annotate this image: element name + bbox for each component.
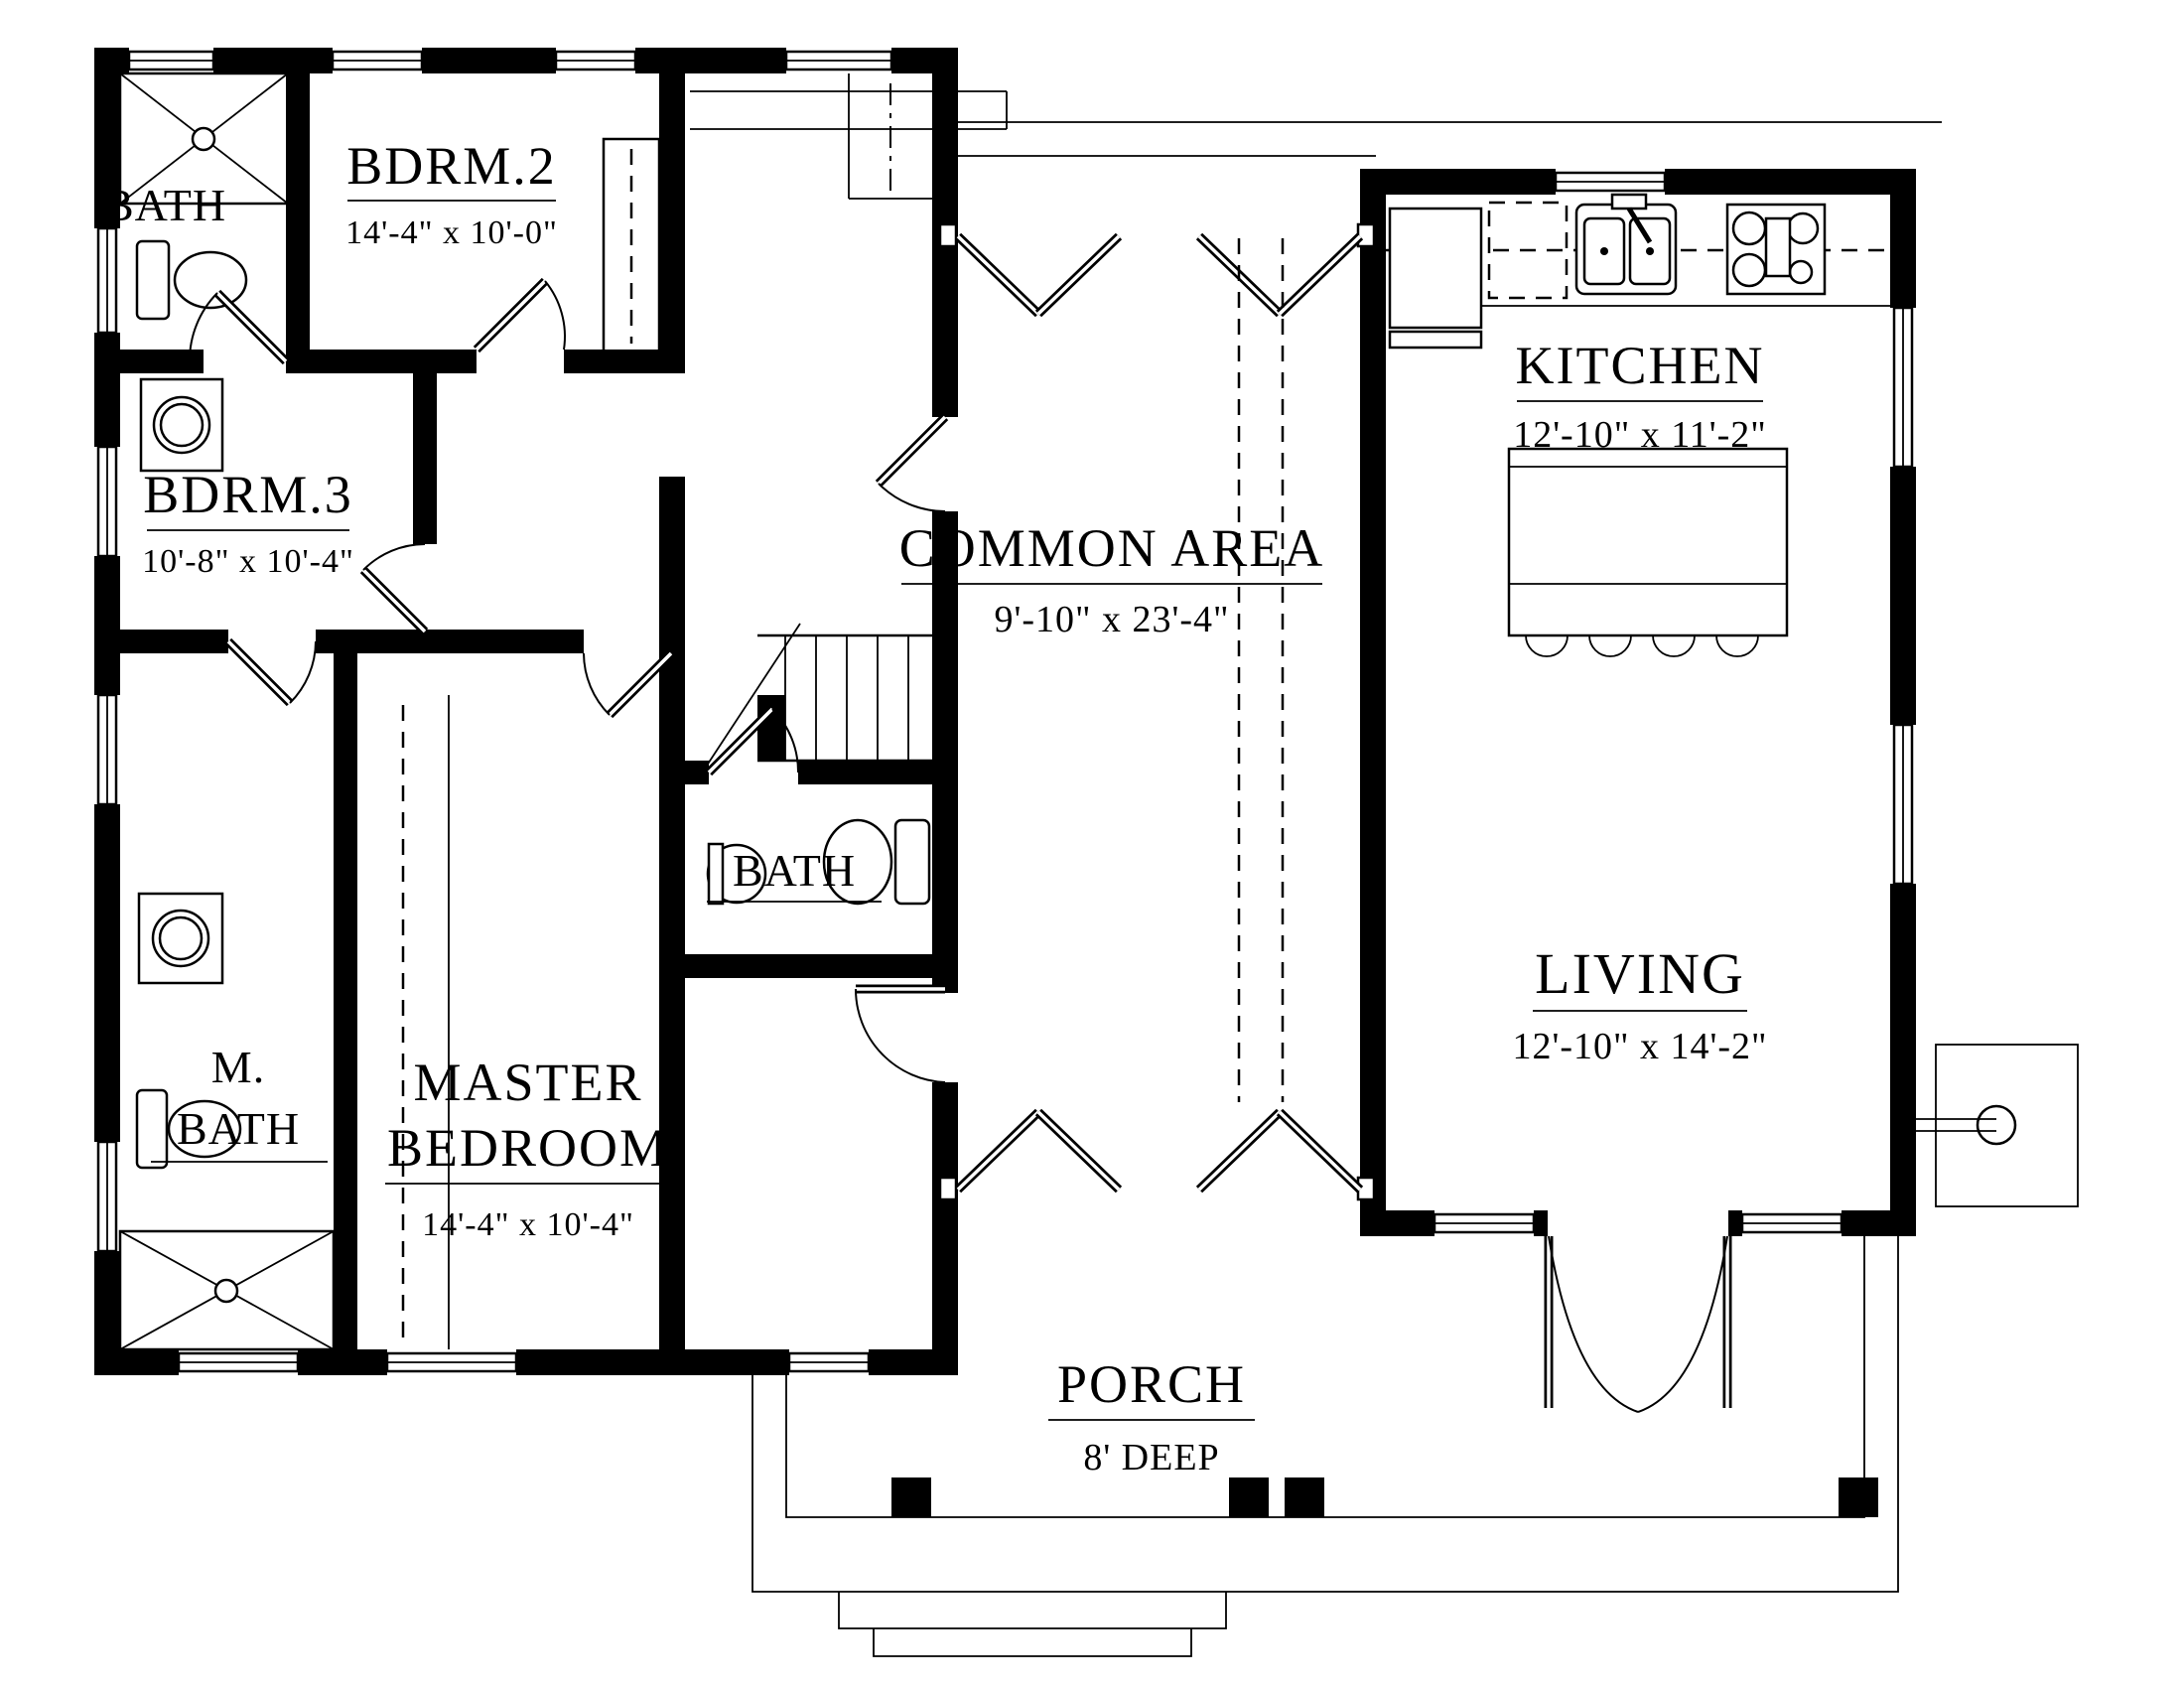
room-title: BDRM.2 — [346, 136, 557, 196]
room-title: BDRM.3 — [143, 465, 353, 524]
room-dims: 14'-4" x 10'-0" — [345, 214, 558, 251]
bifold-doors-top — [940, 224, 1374, 314]
window — [1894, 308, 1912, 467]
stove-icon — [1727, 205, 1825, 294]
porch-post — [891, 1477, 931, 1517]
window — [1742, 1214, 1842, 1232]
label-bdrm2: BDRM.2 14'-4" x 10'-0" — [345, 136, 558, 251]
room-title: BATH — [733, 845, 856, 896]
label-living: LIVING 12'-10" x 14'-2" — [1512, 941, 1767, 1067]
label-bath-mid: BATH — [707, 845, 882, 902]
stool-icon — [1716, 635, 1758, 656]
room-title: KITCHEN — [1516, 336, 1765, 395]
master-closet — [403, 695, 449, 1349]
room-dims: 8' DEEP — [1083, 1437, 1219, 1478]
door-swing — [856, 989, 945, 1082]
window — [556, 52, 635, 70]
stool-icon — [1589, 635, 1631, 656]
window — [1894, 725, 1912, 884]
label-mbath: M. BATH — [151, 1042, 328, 1162]
window — [1556, 173, 1665, 191]
right-wing-windows — [1434, 173, 1912, 1232]
room-title: LIVING — [1535, 941, 1745, 1006]
room-title: BATH — [177, 1103, 300, 1154]
washer-icon — [139, 894, 222, 983]
room-dims: 9'-10" x 23'-4" — [994, 599, 1229, 640]
label-common: COMMON AREA 9'-10" x 23'-4" — [899, 518, 1325, 640]
bdrm2-closet — [604, 139, 659, 353]
washer-icon — [141, 379, 222, 471]
porch-posts — [891, 1477, 1878, 1517]
kitchen-island — [1509, 449, 1787, 656]
door-swing — [584, 653, 671, 715]
room-title: BATH — [103, 180, 226, 230]
room-title: BEDROOM — [387, 1118, 669, 1178]
bifold-doors-bottom — [940, 1112, 1374, 1199]
window — [98, 228, 116, 333]
label-porch: PORCH 8' DEEP — [1048, 1354, 1255, 1478]
label-master: MASTER BEDROOM 14'-4" x 10'-4" — [385, 1053, 671, 1243]
floor-plan-page: BATH BDRM.2 14'-4" x 10'-0" BDRM.3 10'-8… — [0, 0, 2184, 1688]
window — [98, 695, 116, 804]
window — [1434, 1214, 1534, 1232]
room-dims: 12'-10" x 11'-2" — [1513, 414, 1767, 456]
window — [387, 1353, 516, 1371]
kitchen-sink — [1576, 195, 1676, 294]
window — [129, 52, 213, 70]
room-title: PORCH — [1057, 1354, 1246, 1414]
label-bath-upper: BATH — [103, 180, 226, 230]
room-title: M. — [211, 1042, 265, 1092]
porch-post — [1285, 1477, 1324, 1517]
window — [98, 447, 116, 556]
label-kitchen: KITCHEN 12'-10" x 11'-2" — [1513, 336, 1767, 456]
room-title: MASTER — [413, 1053, 642, 1112]
label-bdrm3: BDRM.3 10'-8" x 10'-4" — [142, 465, 354, 580]
floor-plan-drawing: BATH BDRM.2 14'-4" x 10'-0" BDRM.3 10'-8… — [0, 0, 2184, 1688]
window — [333, 52, 422, 70]
room-dims: 10'-8" x 10'-4" — [142, 543, 354, 580]
porch-post — [1229, 1477, 1269, 1517]
stool-icon — [1653, 635, 1695, 656]
door-swing — [228, 641, 316, 703]
french-doors — [1549, 1236, 1727, 1412]
window — [179, 1353, 298, 1371]
stool-icon — [1526, 635, 1568, 656]
ac-unit — [1916, 1045, 2078, 1206]
window — [786, 52, 891, 70]
room-dims: 14'-4" x 10'-4" — [422, 1206, 634, 1243]
door-swing — [879, 417, 945, 511]
door-swing — [363, 544, 425, 632]
room-title: COMMON AREA — [899, 518, 1325, 578]
door-swing — [477, 281, 565, 350]
common-area-ridge-lines — [1239, 238, 1283, 1102]
shower — [120, 1231, 334, 1349]
porch-post — [1839, 1477, 1878, 1517]
window — [98, 1142, 116, 1251]
room-dims: 12'-10" x 14'-2" — [1512, 1026, 1767, 1067]
refrigerator-icon — [1390, 209, 1481, 348]
window — [789, 1353, 869, 1371]
roof-outline — [690, 91, 1942, 156]
